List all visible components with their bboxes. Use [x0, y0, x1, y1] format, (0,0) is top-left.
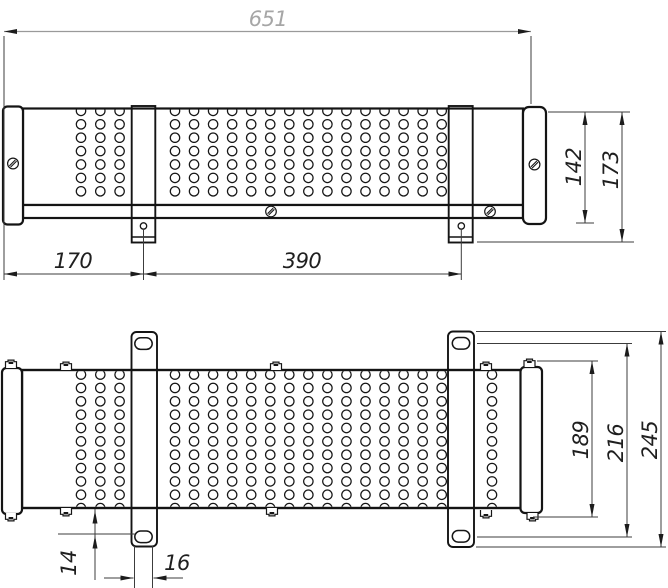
slot-hole: [135, 338, 152, 350]
dim-left-section: 170: [54, 249, 93, 273]
dim-overall-length: 651: [249, 7, 288, 31]
left-end-cap: [2, 368, 22, 514]
left-end-cap: [3, 107, 23, 225]
slot-hole: [452, 531, 469, 543]
dim-hole-edge-offset: 14: [57, 550, 81, 576]
bracket-drawing: 651 142 173 170 390: [0, 0, 668, 588]
right-end-cap: [523, 107, 546, 224]
dim-mid-section: 390: [283, 249, 322, 273]
dim-end-cap-length: 189: [569, 421, 593, 460]
technical-drawing-canvas: 651 142 173 170 390: [0, 0, 668, 588]
dim-bracket-length: 245: [638, 421, 662, 460]
dim-overall-height: 173: [599, 151, 623, 190]
right-end-cap: [521, 367, 543, 513]
strap-hole: [140, 223, 146, 229]
dim-slot-width: 16: [164, 551, 190, 575]
top-view: 651 142 173 170 390: [3, 7, 634, 280]
dim-body-height: 142: [562, 148, 586, 187]
bottom-view: 14 16 189 216 245: [2, 332, 666, 588]
dim-slot-spacing: 216: [604, 424, 628, 463]
slot-hole: [452, 338, 469, 350]
slot-hole: [135, 531, 152, 543]
strap-hole: [458, 223, 464, 229]
